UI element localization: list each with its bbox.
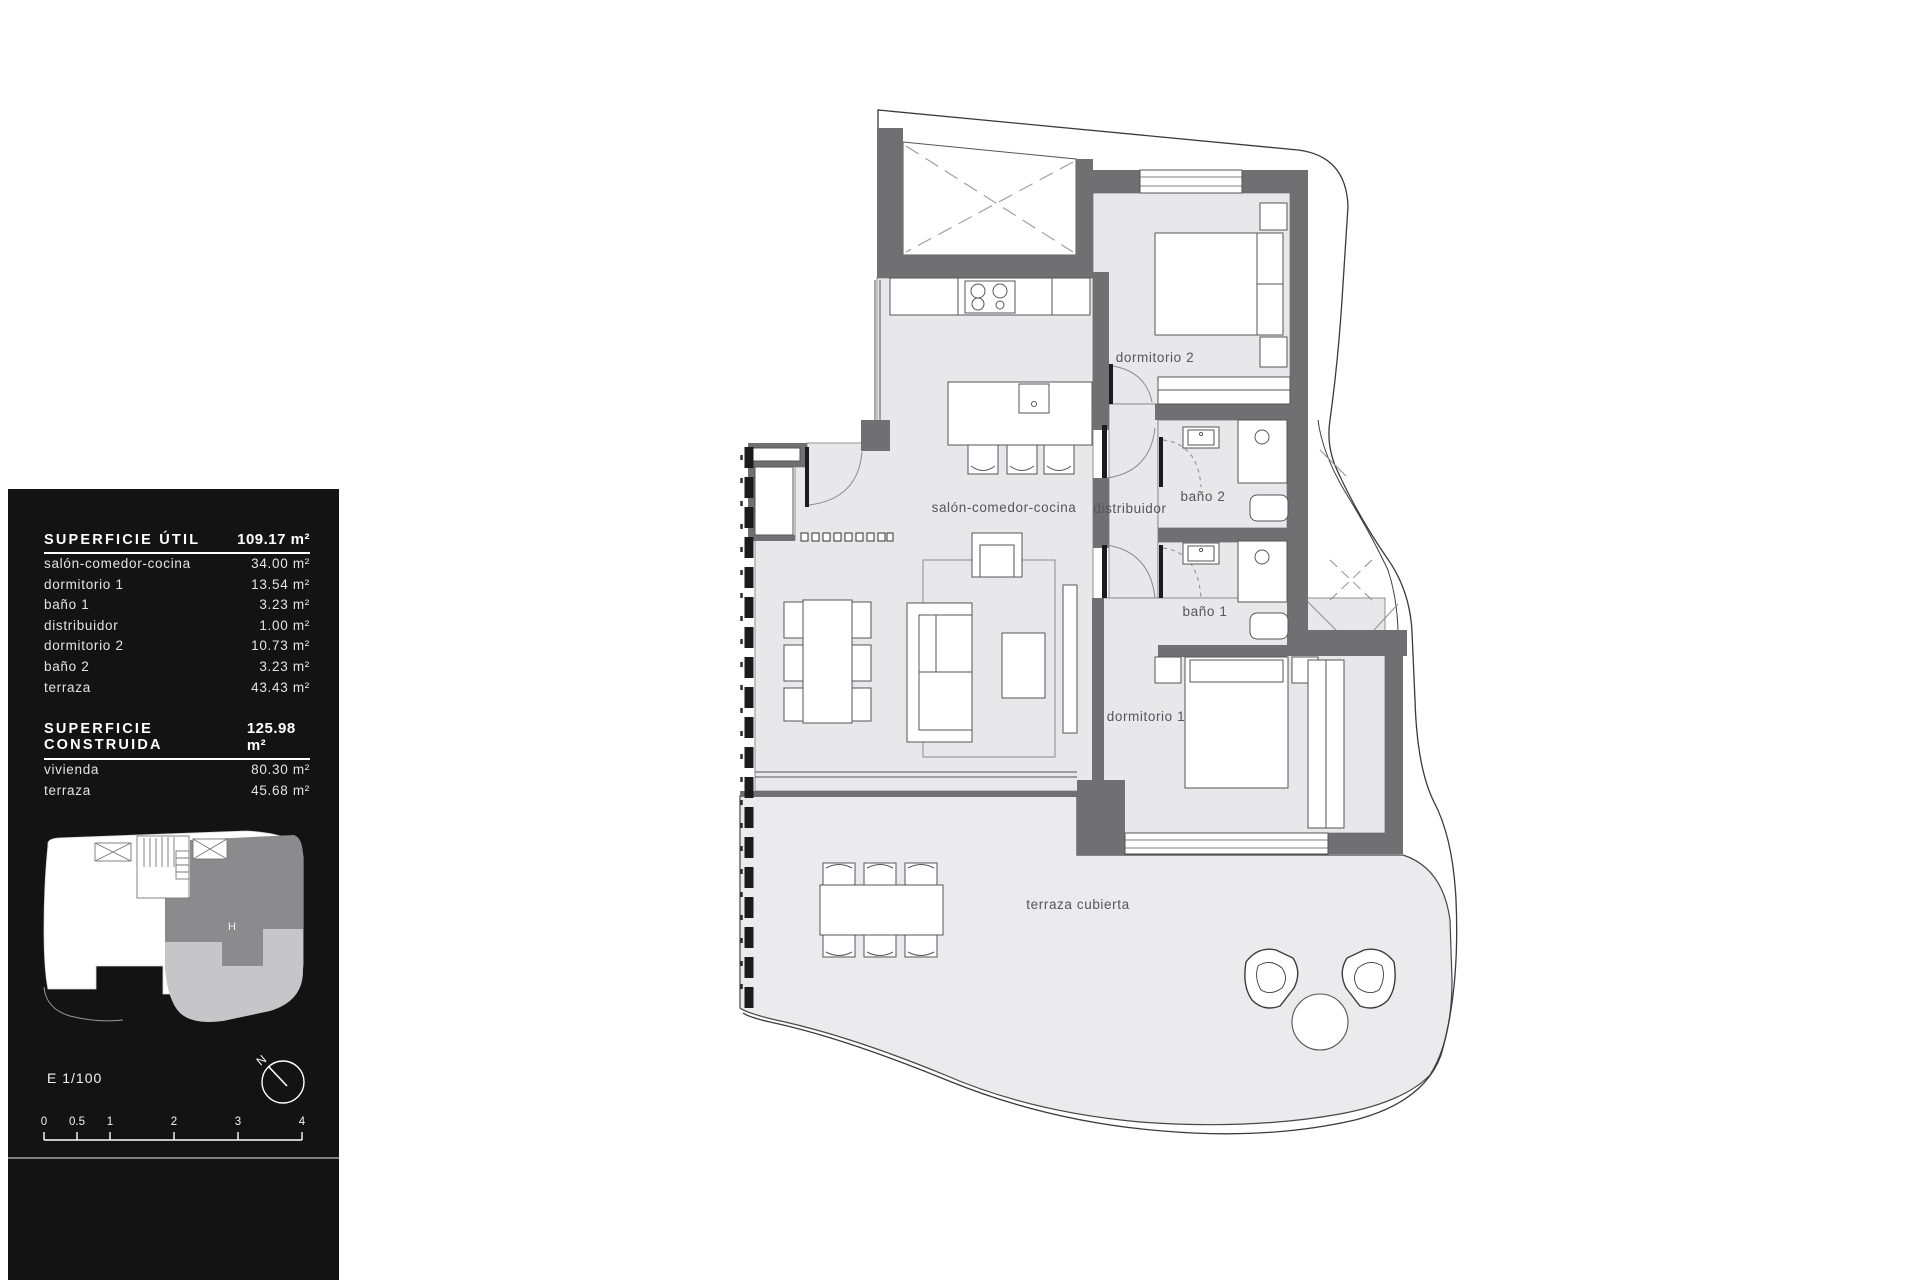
round-table bbox=[1292, 994, 1348, 1050]
room-label-terraza: terraza cubierta bbox=[1026, 897, 1129, 912]
north-arrow-icon: N bbox=[254, 1052, 304, 1103]
hob-icon bbox=[965, 281, 1015, 313]
svg-text:2: 2 bbox=[171, 1116, 177, 1128]
toilet-icon bbox=[1250, 495, 1288, 521]
svg-text:4: 4 bbox=[299, 1116, 306, 1128]
tv-console bbox=[1063, 585, 1077, 733]
svg-text:1: 1 bbox=[107, 1116, 113, 1128]
scale-label: E 1/100 bbox=[47, 1070, 102, 1086]
elevator-shaft bbox=[903, 142, 1076, 255]
kitchen-counter bbox=[890, 278, 1090, 315]
key-plan-unit-letter: H bbox=[228, 921, 236, 933]
panel-graphics: H E 1/100 N 0 0.5 bbox=[8, 489, 339, 1280]
svg-text:0: 0 bbox=[41, 1116, 47, 1128]
scale-bar bbox=[44, 1132, 302, 1140]
key-plan-stairs bbox=[137, 836, 189, 898]
svg-text:0.5: 0.5 bbox=[69, 1116, 85, 1128]
terrace-dining-set bbox=[820, 863, 943, 957]
floorplan-sheet: salón-comedor-cocina distribuidor baño 2… bbox=[0, 0, 1920, 1280]
bar-stools bbox=[968, 445, 1074, 474]
armchair bbox=[972, 533, 1022, 577]
dining-set bbox=[784, 600, 871, 723]
key-plan: H bbox=[44, 831, 303, 1022]
room-label-dorm1: dormitorio 1 bbox=[1107, 709, 1185, 724]
sofa bbox=[907, 603, 972, 742]
room-label-dorm2: dormitorio 2 bbox=[1116, 350, 1194, 365]
north-letter: N bbox=[254, 1052, 270, 1068]
toilet-icon bbox=[1250, 613, 1288, 639]
svg-text:3: 3 bbox=[235, 1116, 241, 1128]
info-panel: SUPERFICIE ÚTIL 109.17 m² salón-comedor-… bbox=[8, 489, 339, 1280]
joinery-dots bbox=[801, 533, 893, 541]
coffee-table bbox=[1002, 633, 1045, 698]
kitchen-island bbox=[948, 382, 1092, 474]
room-label-distribuidor: distribuidor bbox=[1093, 501, 1166, 516]
room-label-bano2: baño 2 bbox=[1181, 489, 1226, 504]
room-label-bano1: baño 1 bbox=[1183, 604, 1228, 619]
scale-bar-labels: 0 0.5 1 2 3 4 bbox=[41, 1116, 306, 1128]
room-label-salon: salón-comedor-cocina bbox=[932, 500, 1077, 515]
